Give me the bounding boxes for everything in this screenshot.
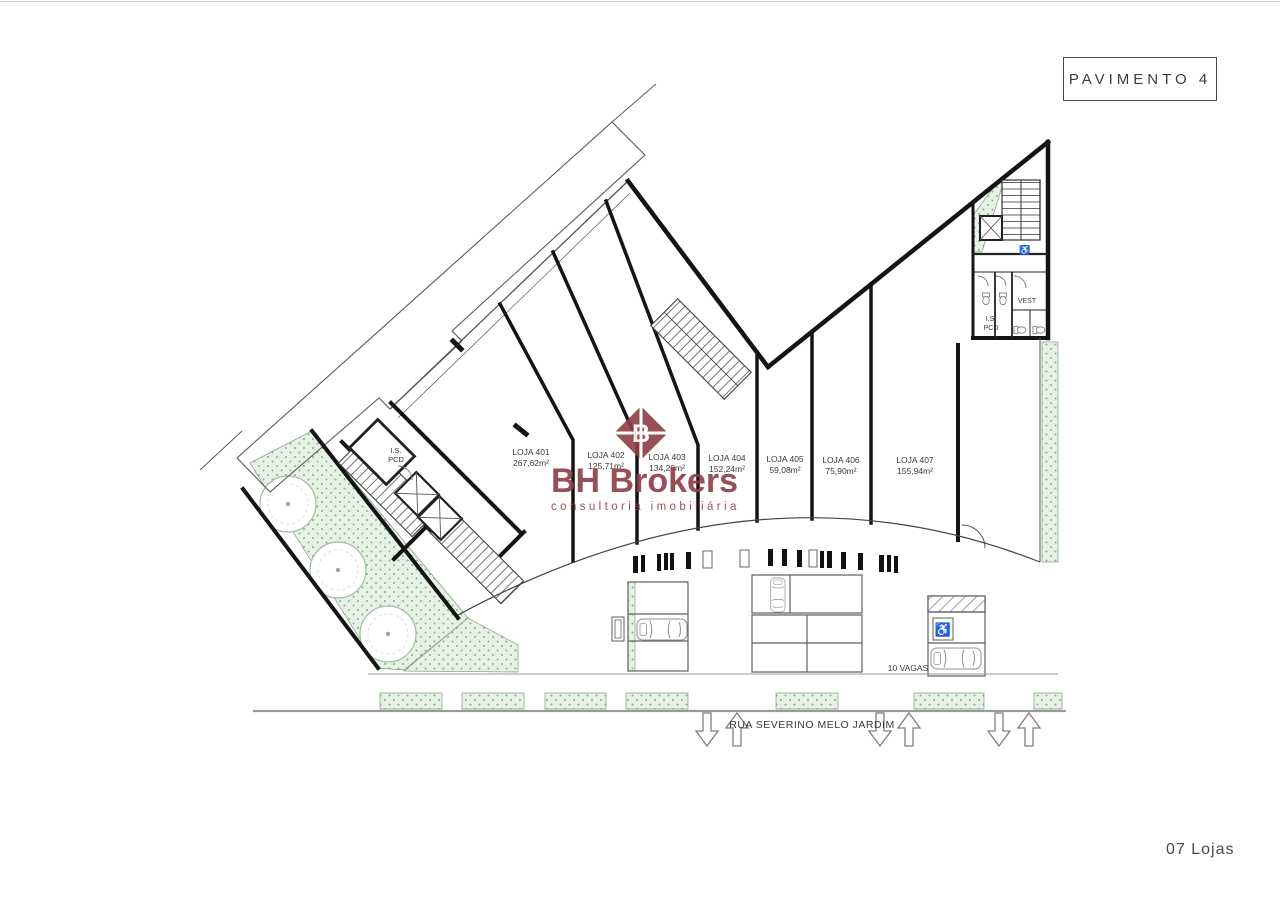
loja-401-name: LOJA 401 — [512, 447, 550, 457]
service-staircase — [651, 299, 751, 399]
arrow-up-icon — [898, 713, 920, 746]
vest-label: VEST — [1018, 298, 1037, 305]
wheelchair-icon: ♿ — [935, 622, 951, 637]
loja-407-name: LOJA 407 — [896, 455, 934, 465]
landscape-strip-right — [1042, 342, 1058, 562]
door-swing — [962, 525, 985, 548]
no-parking-hatch — [928, 596, 985, 612]
is-pcd-right-line1: I.S. — [986, 316, 997, 323]
watermark: B BH Brokers consultoria imobiliária — [551, 404, 731, 513]
is-pcd-right-line2: PCD — [984, 325, 999, 332]
logo-letter: B — [632, 420, 650, 448]
floor-plan-page: LOJA 401 267,62m² LOJA 402 125,71m² LOJA… — [0, 0, 1280, 905]
loja-405-name: LOJA 405 — [766, 454, 804, 464]
toilet-icon — [1033, 327, 1045, 334]
arcade-columns — [633, 549, 898, 573]
watermark-brand: BH Brokers — [551, 464, 731, 498]
wheelchair-icon: ♿ — [1019, 244, 1030, 255]
arrow-up-icon — [1018, 713, 1040, 746]
is-pcd-label-line2: PCD — [388, 455, 404, 464]
toilet-icon — [1014, 327, 1026, 334]
pavimento-title-box: PAVIMENTO 4 — [1063, 57, 1217, 101]
elevator — [980, 216, 1002, 240]
loja-406-name: LOJA 406 — [822, 455, 860, 465]
loja-405-area: 59,08m² — [769, 465, 800, 475]
toilet-icon — [1000, 293, 1007, 305]
landscape-strip-parking — [628, 582, 635, 671]
arrow-down-icon — [696, 713, 718, 746]
door-swings — [978, 276, 1026, 288]
parking-block-middle-top — [752, 575, 862, 613]
toilet-icon — [983, 293, 990, 305]
car-icon — [771, 578, 785, 612]
is-pcd-label-line1: I.S. — [390, 446, 401, 455]
sidewalk-planters — [380, 693, 1062, 709]
loja-401-area: 267,62m² — [513, 458, 549, 468]
vagas-label: 10 VAGAS — [888, 663, 929, 673]
arrow-down-icon — [988, 713, 1010, 746]
watermark-tagline: consultoria imobiliária — [551, 501, 731, 513]
bh-brokers-logo: B — [610, 404, 672, 462]
car-icon — [931, 648, 981, 669]
lojas-count-label: 07 Lojas — [1166, 841, 1235, 859]
pavimento-title: PAVIMENTO 4 — [1069, 71, 1211, 88]
loja-406-area: 75,90m² — [825, 466, 856, 476]
facade-glazing-lines — [390, 181, 630, 418]
loja-407-area: 155,94m² — [897, 466, 933, 476]
page-top-rule — [0, 1, 1280, 2]
car-icon — [637, 619, 687, 640]
street-label: RUA SEVERINO MELO JARDIM — [729, 719, 894, 731]
